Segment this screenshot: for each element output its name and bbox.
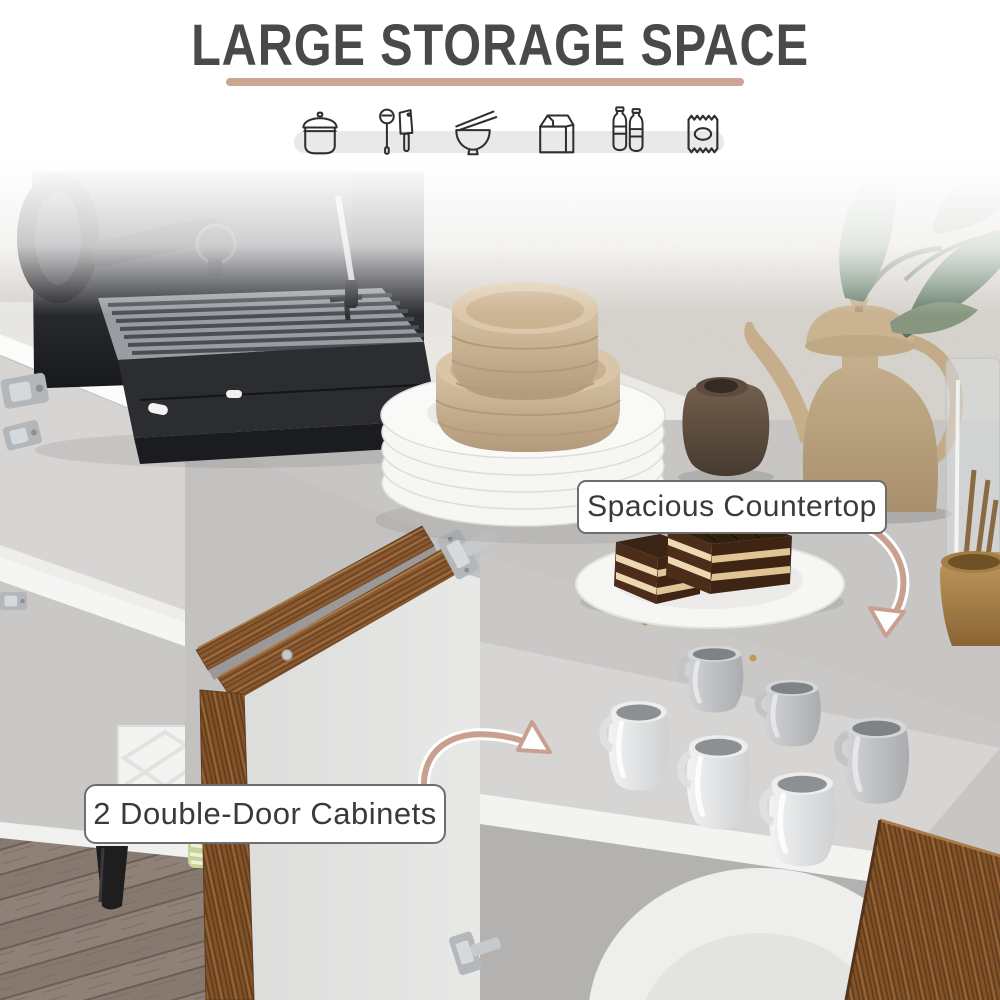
title-underline xyxy=(226,78,744,86)
callout-countertop: Spacious Countertop xyxy=(577,480,887,534)
snack-packet-icon xyxy=(680,110,724,158)
shelf-pin xyxy=(750,655,757,662)
milk-carton-icon xyxy=(531,108,577,158)
icon-strip xyxy=(296,98,724,158)
door-screw xyxy=(282,650,292,660)
callout-cabinets-label: 2 Double-Door Cabinets xyxy=(93,796,437,832)
ladle-and-cleaver-icon xyxy=(376,104,416,158)
callout-countertop-label: Spacious Countertop xyxy=(587,490,877,524)
cooking-pot-icon xyxy=(296,108,344,158)
product-photo xyxy=(0,160,1000,1000)
callout-cabinets: 2 Double-Door Cabinets xyxy=(84,784,446,844)
top-fade xyxy=(0,160,1000,315)
water-bottles-icon xyxy=(608,104,648,158)
gold-cup xyxy=(940,551,1000,646)
page-title: LARGE STORAGE SPACE xyxy=(80,12,920,79)
rice-bowl-chopsticks-icon xyxy=(447,106,499,158)
